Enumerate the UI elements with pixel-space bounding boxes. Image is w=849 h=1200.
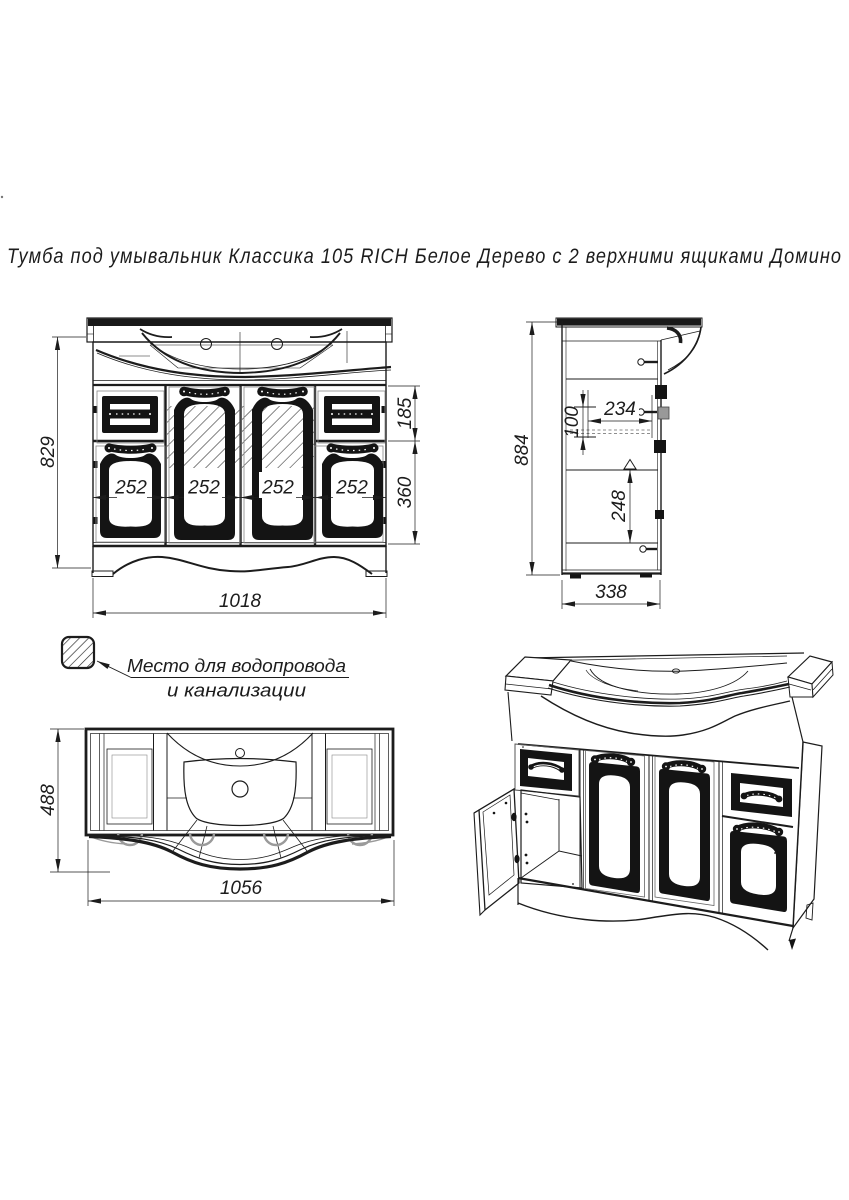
svg-text:1018: 1018 — [219, 591, 262, 612]
svg-text:248: 248 — [609, 490, 630, 523]
svg-text:488: 488 — [38, 784, 59, 816]
svg-text:252: 252 — [187, 478, 220, 499]
svg-text:252: 252 — [114, 478, 147, 499]
svg-text:Место для водопровода: Место для водопровода — [127, 656, 346, 676]
svg-text:и канализации: и канализации — [167, 681, 306, 701]
svg-text:185: 185 — [395, 397, 416, 429]
svg-text:360: 360 — [395, 476, 416, 508]
svg-text:1056: 1056 — [220, 878, 263, 899]
svg-text:884: 884 — [512, 434, 533, 466]
svg-text:338: 338 — [595, 582, 627, 603]
svg-text:829: 829 — [38, 436, 59, 468]
svg-text:Тумба под умывальник Классика: Тумба под умывальник Классика 105 RICH Б… — [7, 245, 842, 268]
svg-text:252: 252 — [335, 478, 368, 499]
svg-text:100: 100 — [562, 406, 583, 438]
svg-text:252: 252 — [261, 478, 294, 499]
svg-text:234: 234 — [603, 399, 636, 420]
